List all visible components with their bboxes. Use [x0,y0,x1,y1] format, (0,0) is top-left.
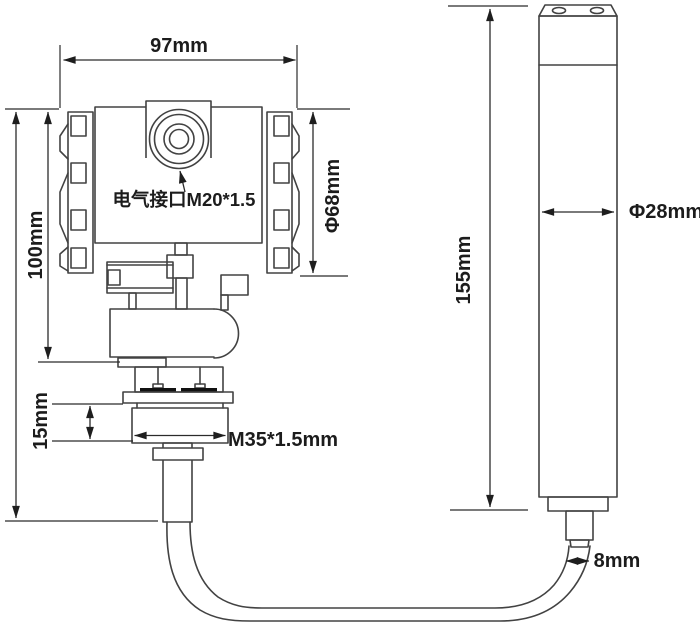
dim-label-housing-width: 97mm [150,36,208,56]
dim-label-housing-height: 100mm [26,211,46,280]
dim-label-thread-spec: M35*1.5mm [228,430,338,450]
dimension-overall-height [5,109,158,521]
dim-label-thread-length: 15mm [31,392,51,450]
mounting-stack [123,367,233,522]
probe-drawing [539,5,617,547]
dimension-thread-length [52,404,133,441]
dim-label-cable-diameter: 8mm [594,551,641,571]
dim-label-electrical-port: 电气接口M20*1.5 [113,191,256,210]
housing-bottom-brackets [107,243,248,310]
line-art [0,0,700,629]
dim-label-housing-diameter: Φ68mm [323,159,343,233]
technical-drawing-canvas: 97mm 100mm Φ68mm 电气接口M20*1.5 15mm M35*1.… [0,0,700,629]
electrical-connector [146,101,211,169]
dim-label-probe-length: 155mm [454,236,474,305]
process-hub [110,309,238,367]
housing-right-cap [267,112,299,273]
housing-left-cap [60,112,93,273]
dim-label-probe-diameter: Φ28mm [629,202,700,222]
cable [167,522,590,621]
dimension-housing-height [38,112,120,362]
